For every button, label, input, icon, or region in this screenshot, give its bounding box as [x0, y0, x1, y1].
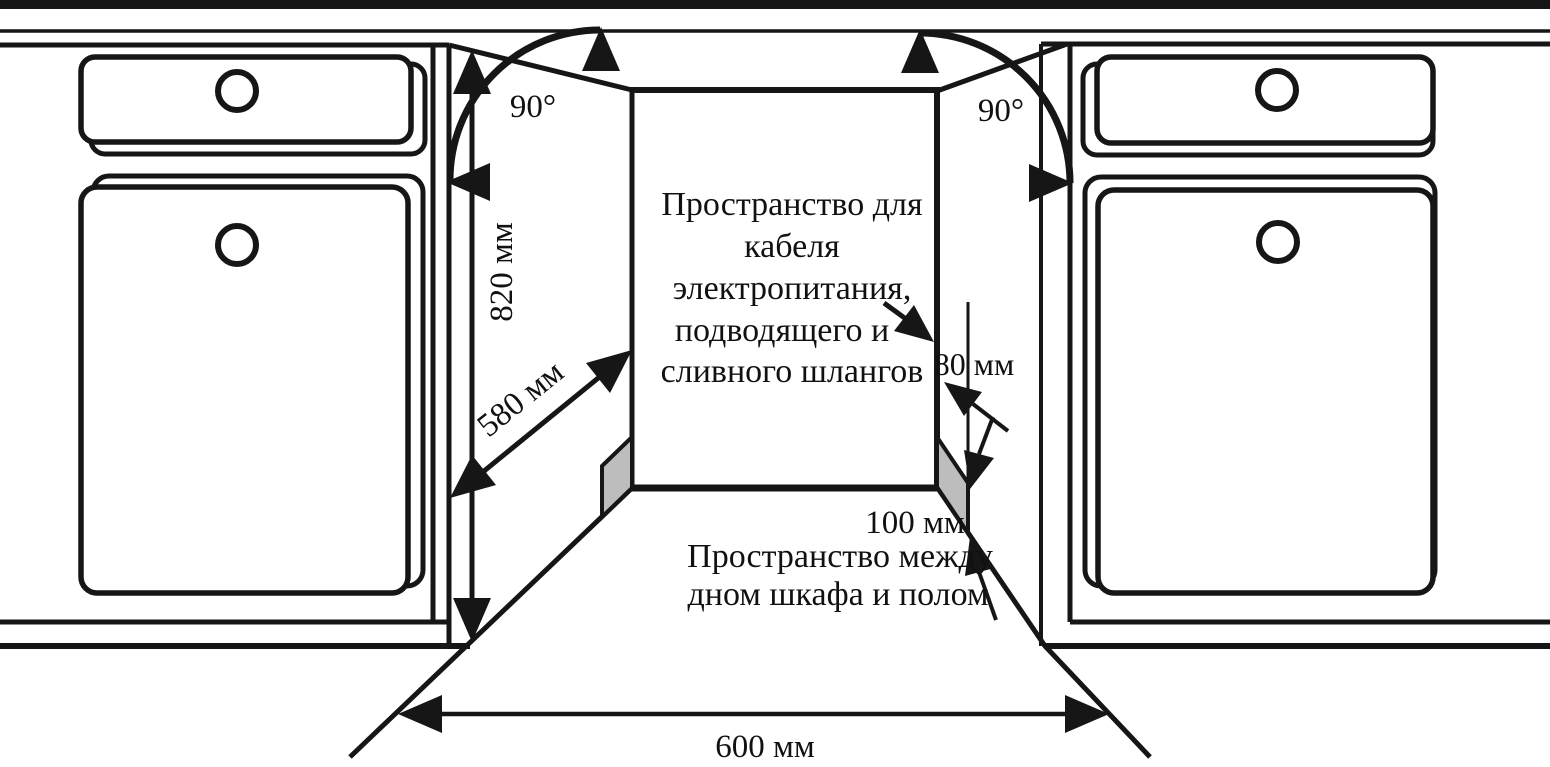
rear-note-callout-arrow-icon [894, 305, 934, 342]
dim-height-arrow-top-icon [453, 50, 491, 94]
right-door-knob [1259, 223, 1297, 261]
rear-space-note-line-2: кабеля [744, 228, 840, 265]
installation-diagram: Пространство для кабеля электропитания, … [0, 0, 1550, 767]
dim-width-arrow-left-icon [398, 695, 442, 733]
dim-rear-gap-label: 80 мм [934, 346, 1015, 382]
left-toe-kick-shade [602, 437, 632, 517]
dim-width-arrow-right-icon [1065, 695, 1109, 733]
diagram-canvas: Пространство для кабеля электропитания, … [0, 0, 1550, 767]
left-door-knob [218, 226, 256, 264]
dim-rear-gap-arrow-icon [944, 382, 982, 416]
dim-height-arrow-bottom-icon [453, 598, 491, 642]
dim-width-label: 600 мм [715, 729, 815, 765]
niche-right-wall-top-diagonal [937, 44, 1067, 91]
dim-depth-label: 580 мм [471, 354, 571, 445]
dim-floor-gap-upper-leader [979, 417, 993, 454]
angle-label-left: 90° [510, 89, 556, 125]
dim-height-label: 820 мм [484, 222, 520, 322]
rear-space-note-line-5: сливного шлангов [661, 353, 924, 390]
rear-space-note-line-4: подводящего и [675, 312, 889, 349]
countertop-top-band [0, 0, 1550, 9]
left-drawer-knob [218, 72, 256, 110]
angle-label-right: 90° [978, 93, 1024, 129]
dim-depth-arrow-back-icon [586, 350, 632, 393]
floor-space-note-line-1: Пространство между [687, 538, 993, 575]
dim-floor-gap-label: 100 мм [865, 505, 965, 541]
rear-space-note-line-1: Пространство для [661, 186, 923, 223]
right-drawer-knob [1258, 71, 1296, 109]
rear-space-note-line-3: электропитания, [673, 270, 912, 307]
floor-space-note-line-2: дном шкафа и полом [687, 576, 988, 613]
